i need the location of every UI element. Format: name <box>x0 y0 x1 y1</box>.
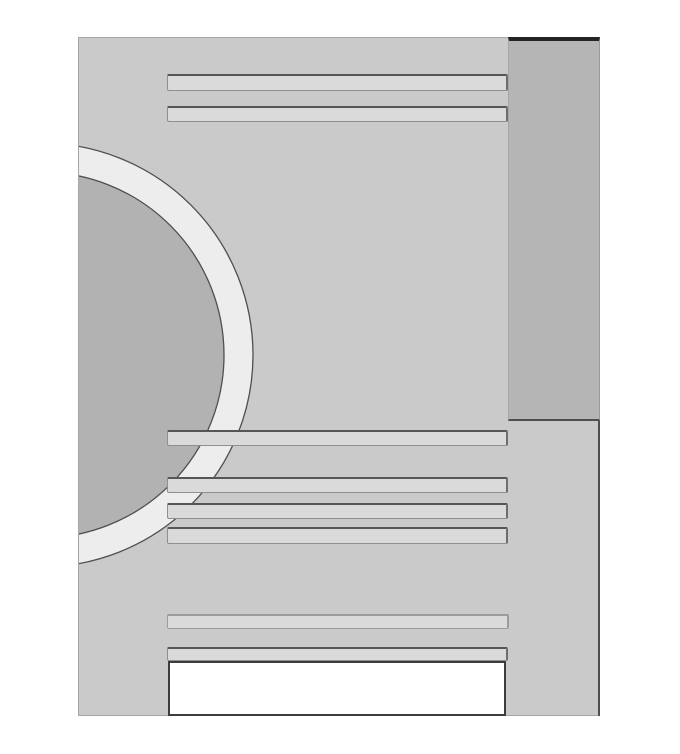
text-line-placeholder <box>167 430 508 446</box>
text-line-placeholder <box>167 74 508 91</box>
sidebar-block <box>508 37 600 421</box>
footer-white-box <box>168 661 506 716</box>
page-right-edge <box>598 421 600 716</box>
text-line-placeholder <box>167 527 508 544</box>
text-line-placeholder <box>167 647 508 661</box>
page-preview-canvas <box>0 0 680 754</box>
text-line-placeholder <box>167 106 508 122</box>
text-line-placeholder <box>167 503 508 519</box>
text-line-placeholder <box>167 477 508 493</box>
text-line-placeholder <box>167 614 509 629</box>
